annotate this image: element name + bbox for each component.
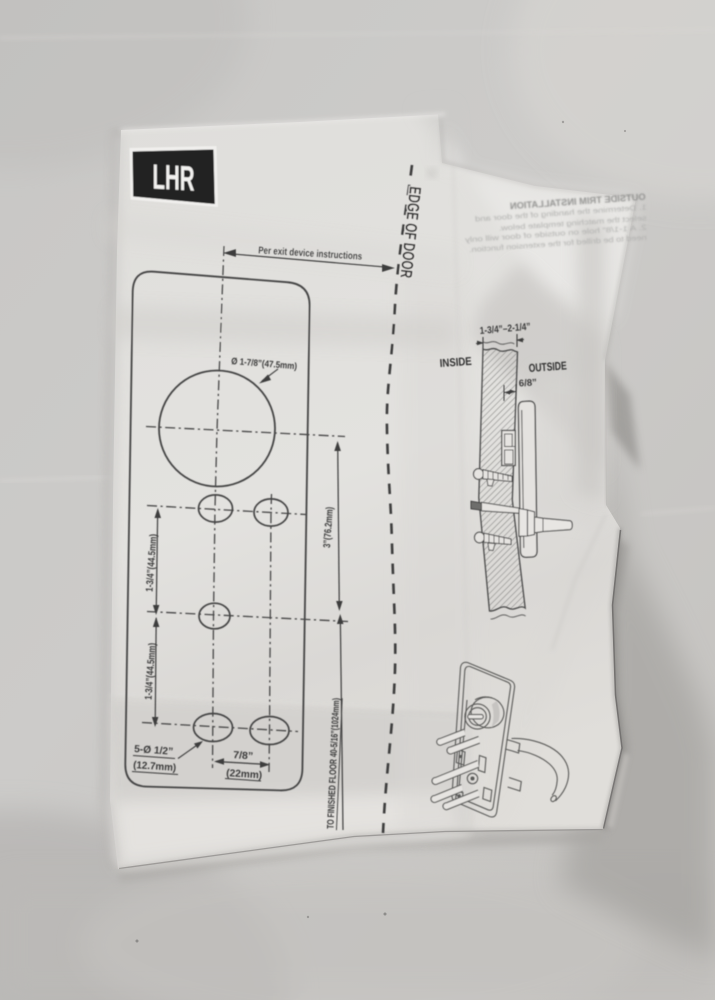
svg-text:7/8”: 7/8” — [233, 750, 254, 762]
svg-text:6/8”: 6/8” — [518, 377, 537, 389]
svg-text:LHR: LHR — [153, 158, 195, 199]
svg-text:INSIDE: INSIDE — [439, 356, 472, 370]
